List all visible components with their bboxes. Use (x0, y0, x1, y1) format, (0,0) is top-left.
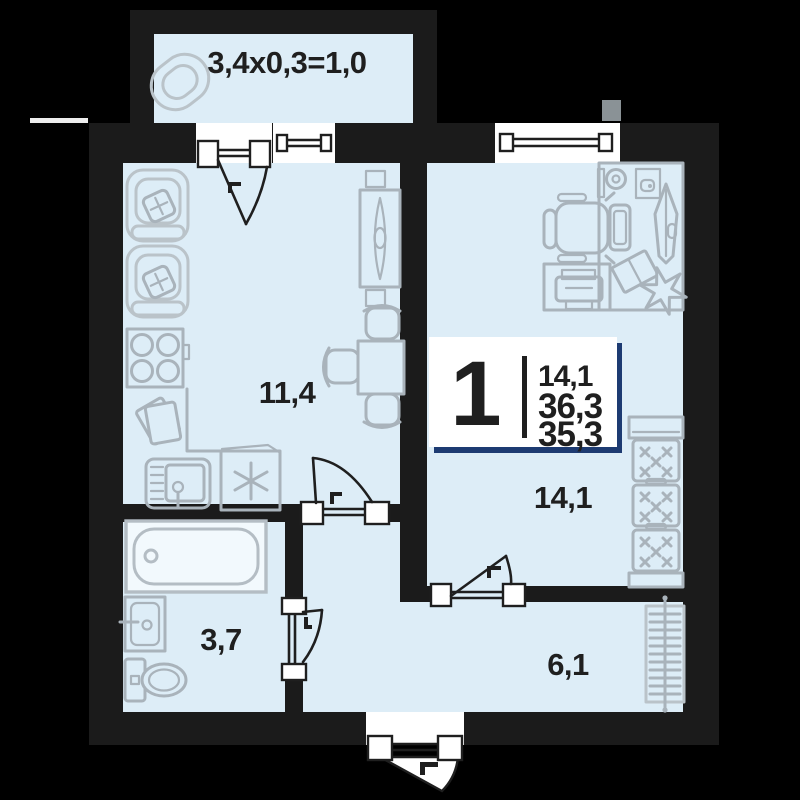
badge-rooms-count: 1 (450, 343, 501, 445)
bathtub-icon (126, 521, 266, 592)
bedroom-window (495, 123, 620, 163)
entrance-door-icon (366, 712, 464, 791)
dining-table-icon (358, 341, 404, 394)
floor-plan-canvas: 1 14,1 36,3 35,3 3,4x0,3=1,0 11,4 14,1 3… (0, 0, 800, 800)
floor-plan: 1 14,1 36,3 35,3 3,4x0,3=1,0 11,4 14,1 3… (0, 0, 800, 800)
balcony-label: 3,4x0,3=1,0 (207, 45, 366, 80)
badge-value-reduced: 35,3 (538, 415, 603, 454)
radiator-icon (646, 595, 684, 712)
hallway-label: 6,1 (547, 647, 589, 682)
kitchen-living-label: 11,4 (259, 375, 317, 410)
bathroom-label: 3,7 (200, 622, 242, 657)
balcony-window (273, 123, 335, 163)
toilet-icon (125, 659, 186, 701)
info-badge: 1 14,1 36,3 35,3 (429, 337, 622, 454)
neighbor-slab-line (30, 118, 88, 123)
bedroom-label: 14,1 (534, 480, 593, 515)
vent-block (602, 100, 621, 121)
